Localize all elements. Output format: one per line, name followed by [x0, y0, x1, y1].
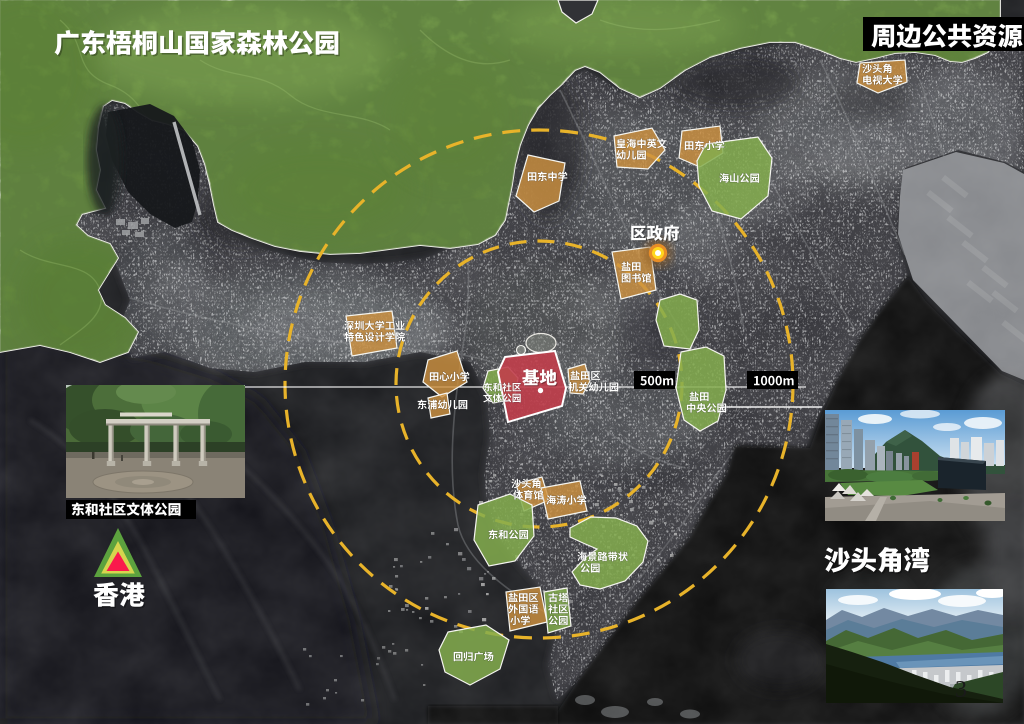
svg-text:3: 3 [955, 677, 967, 703]
